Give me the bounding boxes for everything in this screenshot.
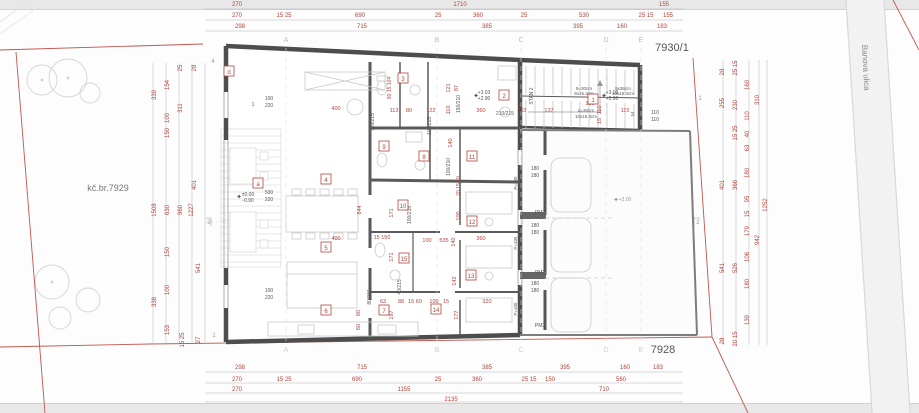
dimension-text: P=195 [513, 176, 518, 190]
dimension-text: 15 25 [180, 332, 186, 348]
dimension-text: +2.90 [478, 96, 491, 102]
site-plan-drawing: AABBCCDDEE 270171015527015 2569025360255… [0, 0, 919, 413]
dimension-text: 142 [452, 276, 458, 285]
dimension-text: 320 [482, 299, 491, 305]
dimension-text: 90 15 104 [387, 77, 393, 99]
grid-letter-bottom: E [639, 347, 644, 354]
dimension-text: 255 [720, 97, 726, 108]
dimension-text: 154 [165, 79, 171, 90]
dimension-text: 25 [521, 13, 528, 19]
dimension-text: 40/215 [397, 279, 403, 295]
dimension-text: 270 [232, 2, 243, 8]
dimension-text: 160 [617, 24, 628, 30]
dimension-text: 385 [482, 24, 493, 30]
dimension-text: 400 [331, 236, 340, 242]
dimension-text: 360 [476, 236, 485, 242]
parcel-label-7929: kč.br.7929 [87, 183, 129, 193]
dimension-text: 180 [745, 167, 751, 178]
dimension-text: 25 15 [638, 13, 654, 19]
road-bottom [0, 404, 919, 413]
room-number: 14 [433, 308, 440, 314]
dimension-text: 10x15.3cm [575, 114, 597, 119]
dimension-text: 960 [178, 204, 184, 215]
dimension-text: 60 [356, 324, 362, 330]
dimension-text: ✦ [473, 92, 479, 100]
dimension-text: 366 [733, 179, 739, 190]
dimension-text: 140 [448, 138, 454, 147]
dimension-text: 25 15 [521, 377, 537, 383]
dimension-text: ✦ [236, 193, 242, 201]
dimension-text: 100 [265, 288, 274, 294]
dimension-text: 80 [406, 108, 412, 114]
dimension-text: 180 [531, 166, 540, 172]
grid-letter-bottom: D [603, 347, 608, 354]
dimension-text: 1 [252, 102, 255, 108]
dimension-text: 560 [616, 377, 627, 383]
dimension-text: 150/210 [456, 95, 462, 113]
dimension-text: 183 [657, 24, 668, 30]
dimension-text: 121 [446, 83, 452, 92]
dimension-text: 160 [620, 365, 631, 371]
parcel-label-7928: 7928 [651, 344, 675, 356]
dimension-text: 395 [573, 24, 584, 30]
dimension-text: 2135 [444, 397, 458, 403]
dimension-text: 401 [720, 179, 726, 190]
dimension-text: 110 [651, 110, 659, 116]
room-number: 11 [469, 155, 476, 161]
dimension-text: 40 [745, 130, 751, 137]
dimension-text: 27 [196, 336, 202, 343]
dimension-text: 150 [165, 127, 171, 138]
dimension-text: 20 15 [733, 331, 739, 347]
dimension-text: 270 [232, 377, 243, 383]
dimension-text: 710 [599, 387, 610, 393]
dimension-text: 153 [165, 324, 171, 335]
dimension-text: 110 [651, 117, 659, 123]
dimension-text: 2 [696, 220, 700, 226]
dimension-text: 1155 [398, 387, 412, 393]
dimension-text: 180 [745, 278, 751, 289]
dimension-text: 715 [357, 24, 368, 30]
dimension-text: 180 [531, 173, 540, 179]
dimension-text: PM1 [535, 210, 546, 216]
dimension-text: 28 [720, 68, 726, 75]
dimension-text: 526 [733, 262, 739, 273]
dimension-text: 171 [389, 252, 395, 261]
dimension-text: 385 [482, 365, 493, 371]
grid-letter-bottom: B [435, 347, 440, 354]
dimension-text: 140 [451, 237, 457, 246]
grid-letter-top: B [435, 37, 440, 44]
dimension-text: +2.90 [606, 96, 619, 102]
trees [27, 59, 100, 329]
dimension-text: 338 [152, 296, 158, 307]
dimension-text: 180 [531, 288, 540, 294]
dimension-text: 15 [597, 118, 603, 124]
dimension-text: 139 [745, 314, 751, 325]
dimension-text: 180 [531, 230, 540, 236]
dimension-text: 395 [560, 365, 571, 371]
dimension-text: 28 [192, 64, 198, 71]
dimension-text: 401 [192, 179, 198, 190]
dimension-text: 1 [698, 96, 702, 102]
dimension-text: 100 [265, 96, 274, 102]
room-number: 10 [400, 204, 407, 210]
dimension-text: 106 [745, 251, 751, 262]
dimension-text: 270 [232, 13, 243, 19]
dimension-text: 110 [597, 106, 603, 115]
dimension-text: 360 [473, 13, 484, 19]
dimension-text: 4 [211, 59, 215, 65]
dimension-text: ✦ [601, 92, 607, 100]
dimension-text: 110 [745, 111, 751, 121]
dimension-text: 197 [389, 310, 395, 319]
dimension-text: 150 [165, 246, 171, 257]
dimension-text: 15 25 [276, 377, 292, 383]
dimension-text: ✦ [613, 196, 619, 204]
dimension-text: 95 [745, 195, 751, 202]
dimension-text: PM2 [535, 270, 546, 276]
dimension-text: 690 [352, 377, 363, 383]
dimension-text: P=105 [513, 236, 518, 250]
dimension-text: 15 25 [733, 125, 739, 141]
dimension-text: 25 [435, 13, 442, 19]
dimension-text: 137 [544, 108, 553, 114]
dimension-text: 535 [439, 238, 448, 244]
floor-plan-sheet: AABBCCDDEE 270171015527015 2569025360255… [0, 0, 919, 413]
dimension-text: 100/215 [427, 117, 433, 135]
dimension-text: 210/215 [496, 111, 514, 117]
dimension-text: 177 [454, 310, 460, 319]
dimension-text: 87 [454, 85, 460, 91]
dimension-text: 15 25 [276, 13, 292, 19]
dimension-text: 100/210 [446, 158, 452, 176]
dimension-text: 15 [443, 299, 449, 305]
dimension-text: PM3 [535, 323, 546, 329]
dimension-text: 150 [545, 377, 556, 383]
dimension-text: 230 [733, 99, 739, 110]
dimension-text: 54 [630, 111, 635, 117]
dimension-text: 220 [265, 197, 274, 203]
dimension-text: 88 [398, 299, 404, 305]
dimension-text: 715 [357, 365, 368, 371]
dimension-text: 25 [435, 377, 442, 383]
dimension-text: 183 [653, 365, 664, 371]
dimension-text: +3.00 [619, 197, 632, 203]
dimension-text: 942 [755, 234, 761, 245]
dimension-text: 171 [389, 208, 395, 217]
dimension-text: 1227 [189, 203, 195, 217]
dimension-text: 63 [380, 299, 386, 305]
room-number: 12 [469, 220, 476, 226]
dimension-text: 298 [235, 365, 246, 371]
dimension-text: 115 [621, 108, 630, 114]
dimension-text: 122 [426, 108, 435, 114]
dimension-text: 690 [355, 13, 366, 19]
dimension-text: 25 [178, 64, 184, 71]
dimension-text: 500 [265, 190, 274, 196]
dimension-text: 1710 [453, 2, 467, 8]
dimension-text: 80 [356, 310, 362, 316]
dimension-text: 270 [232, 387, 243, 393]
dimension-text: 530 [579, 13, 590, 19]
dimension-text: 220 [265, 295, 274, 301]
dimension-text: d=30cm [578, 108, 594, 113]
room-number: 13 [468, 274, 475, 280]
dimension-text: 70 15 70 [456, 176, 462, 196]
dimension-text: 100 [165, 284, 171, 295]
dimension-text: 155 [663, 13, 674, 19]
street-right [846, 0, 910, 413]
grid-letter-bottom: A [284, 347, 289, 354]
dimension-text: 311 [178, 103, 184, 113]
dimension-text: 400 [331, 106, 340, 112]
dimension-text: 180 [531, 223, 540, 229]
dimension-text: 1508 [152, 203, 158, 217]
dimension-text: 310 [755, 94, 761, 105]
dimension-text: 220 [265, 103, 274, 109]
dimension-text: 15 [745, 210, 751, 217]
dimension-text: 15 60 [408, 299, 422, 305]
dimension-text: 100 [456, 211, 462, 220]
dimension-text: 360 [476, 108, 485, 114]
dimension-text: 160 [745, 79, 751, 90]
grid-letter-top: C [518, 37, 523, 44]
dimension-text: 110 [446, 106, 452, 115]
dimension-text: 80/215 [367, 289, 373, 305]
dimension-text: 100 [165, 112, 171, 123]
dimension-text: 113 [390, 108, 399, 114]
dimension-text: 63 [745, 144, 751, 151]
dimension-text: P=105 [513, 302, 518, 316]
dimension-text: 541 [720, 262, 726, 273]
dimension-text: 25 15 [733, 60, 739, 76]
grid-letter-top: D [603, 37, 608, 44]
dimension-text: 360 [472, 377, 483, 383]
grid-letter-top: E [639, 37, 644, 44]
dimension-text: 1252 [763, 198, 769, 212]
dimension-text: 1 [212, 333, 216, 339]
dimension-text: 155 [659, 2, 670, 8]
dimension-text: 339 [152, 89, 158, 100]
dimension-text: 15 150 [374, 235, 391, 241]
dimension-text: 298 [235, 24, 246, 30]
room-number: d [227, 70, 230, 76]
dimension-text: 179 [745, 225, 751, 236]
dimension-text: 180 [531, 281, 540, 287]
dimension-text: 33 [520, 108, 526, 114]
grid-letter-bottom: C [518, 347, 523, 354]
dimension-text: 630 [165, 204, 171, 215]
parcel-label-7930-1: 7930/1 [655, 42, 689, 54]
dimension-text: 100 [422, 238, 431, 244]
dimension-text: -0.90 [242, 198, 254, 204]
grid-letter-top: A [284, 37, 289, 44]
room-number: 15 [401, 257, 408, 263]
dimension-text: 110/215 [370, 113, 376, 131]
dimension-text: 28 [720, 337, 726, 344]
dimension-text: STAN 2 [529, 87, 535, 104]
dimension-text: 844 [357, 205, 363, 214]
dimension-text: 541 [196, 262, 202, 273]
